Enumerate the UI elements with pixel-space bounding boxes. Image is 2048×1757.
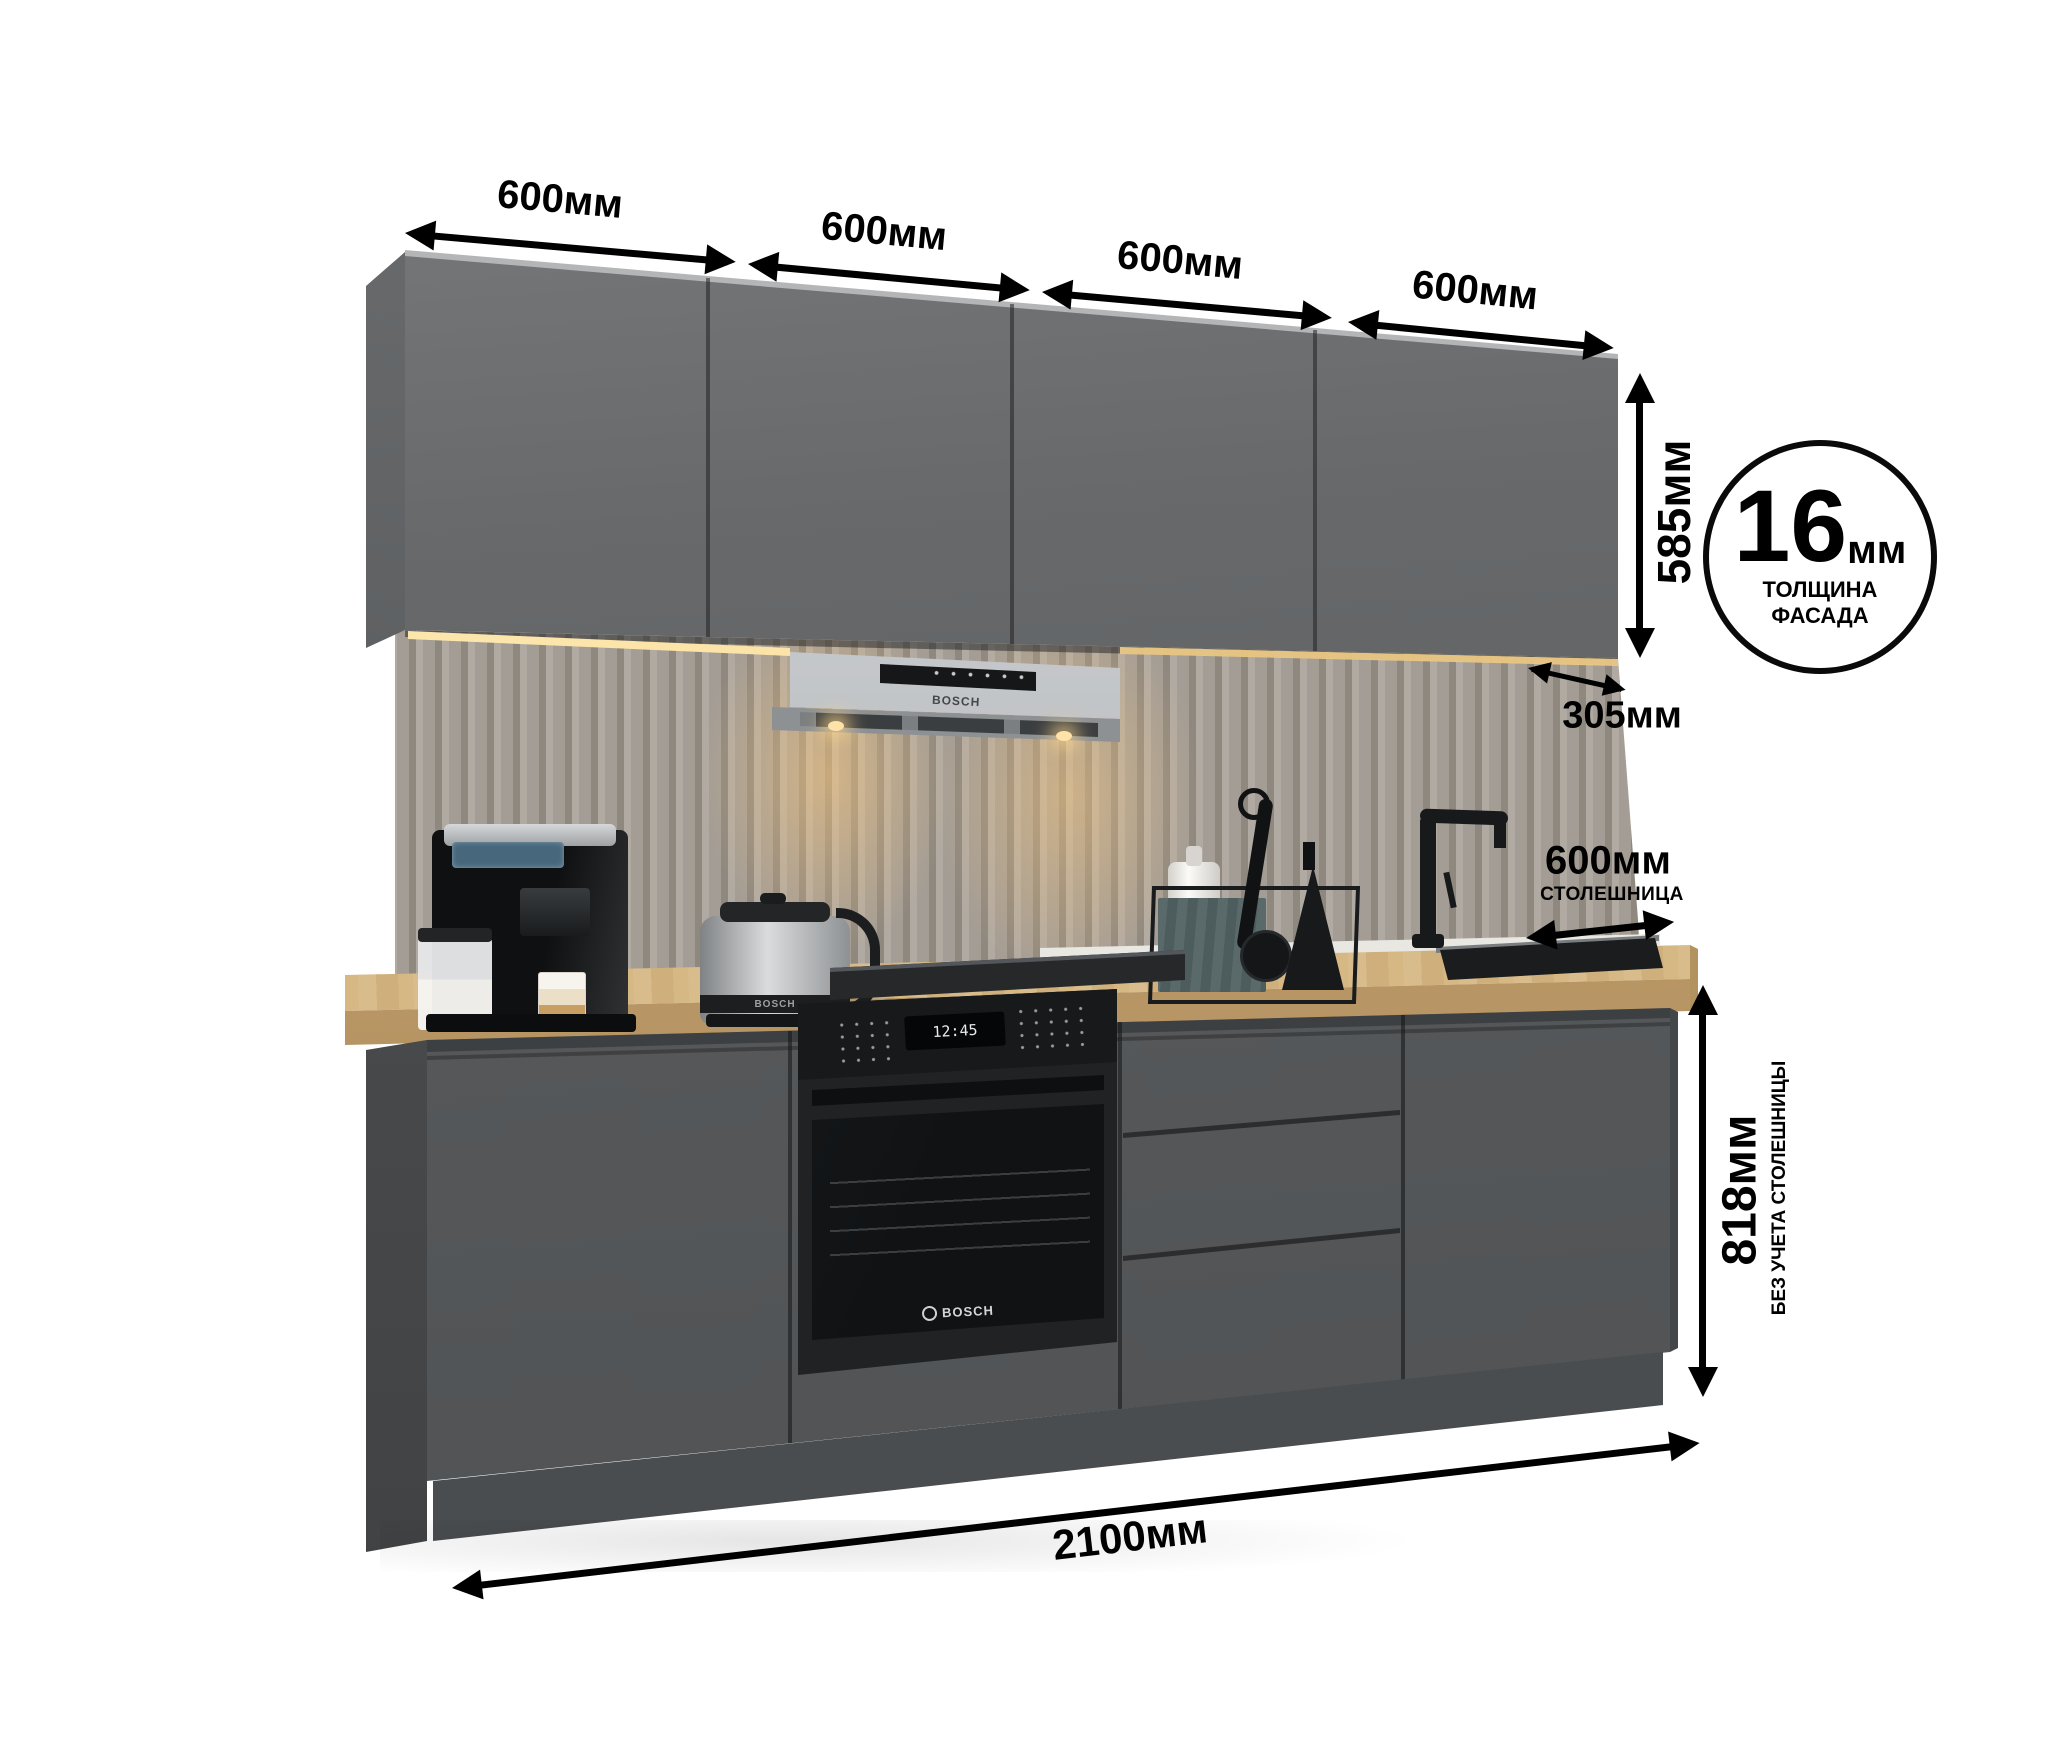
base-right-end-panel [0,0,2048,1757]
hood-lamp-right [1056,731,1072,741]
wall-door-divider [0,0,2048,1757]
countertop-front-edge [0,0,2048,1757]
wall-door-divider [0,0,2048,1757]
coffee-machine-display [452,842,564,868]
sink-basin [0,0,2048,1757]
dim-label-counter-depth-caption: СТОЛЕШНИЦА [1540,884,1684,906]
backsplash-panel [0,0,2048,1757]
cooktop-hob [0,0,2048,1757]
countertop-back-ledge [0,0,2048,1757]
coffee-machine-drip-tray [426,1014,636,1032]
hood-brand-label: BOSCH [932,693,981,709]
cooker-hood-control-strip [0,0,2048,1757]
dim-label-wall-depth: 305мм [1562,695,1682,738]
facade-thickness-value-row: 16 мм [1734,485,1907,569]
led-strip-left [0,0,2048,1757]
dim-arrow-top-width-1 [404,216,738,279]
wall-cabinet-top-edge [0,0,2048,1757]
drawer-gap-bottom [0,0,2048,1757]
kettle-lid-knob [760,893,786,904]
faucet-riser [1420,818,1436,944]
oven-button-dots-left [834,1017,892,1064]
cooker-hood-filters [0,0,2048,1757]
wall-cabinet-underside-shadow [0,0,2048,1757]
oven-door-window [0,0,2048,1757]
kettle-base [706,1014,846,1027]
plinth [0,0,2048,1757]
base-cabinets-front [0,0,2048,1757]
oven-brand-label: BOSCH [942,1303,995,1321]
dim-arrow-counter-depth [1524,905,1676,955]
dim-arrow-top-width-2 [746,247,1031,307]
drawer-gap-top [0,0,2048,1757]
base-cabinet-gap [0,0,2048,1757]
faucet-spout-down [1494,820,1506,848]
kettle-lid [720,902,830,922]
sink-rim [0,0,2048,1757]
coffee-machine-brew-group [520,888,590,936]
facade-thickness-value: 16 [1734,485,1847,569]
led-strip-right [0,0,2048,1757]
bosch-emblem-icon [922,1306,938,1322]
kettle-brand-band: BOSCH [700,995,850,1013]
hood-button-dots [928,667,1028,682]
oven-body [0,0,2048,1757]
countertop-surface [0,0,2048,1757]
oven-rack-reflections [0,0,2048,1757]
milk-carafe-lid [418,928,492,942]
base-top-rail-shadow [0,0,2048,1757]
dim-label-top-width-4: 600мм [1410,263,1540,320]
facade-thickness-badge: 16 мм ТОЛЩИНА ФАСАДА [1703,440,1937,674]
faucet-lever [1443,872,1456,908]
dim-arrow-total-width [450,1426,1702,1605]
facade-thickness-caption-2: ФАСАДА [1771,603,1868,629]
dim-label-top-width-1: 600мм [495,172,624,228]
facade-thickness-unit: мм [1847,534,1906,567]
hood-lamp-left [828,721,844,731]
oven-clock-display: 12:45 [904,1011,1006,1050]
kitchen-dimensions-diagram: BOSCH BOSCH [0,0,2048,1757]
dim-label-top-width-2: 600мм [819,204,948,260]
oven-brand-row: BOSCH [922,1303,995,1322]
dim-label-counter-depth: 600мм [1545,839,1671,884]
base-cabinet-gap [0,0,2048,1757]
wall-cabinet-side-panel [0,0,2048,1757]
base-door-top-recess [0,0,2048,1757]
cooker-hood-front [0,0,2048,1757]
brush-handle-ring [1238,788,1270,820]
dim-label-wall-height: 585мм [1647,440,1701,585]
dim-label-base-height: 818мм [1713,1114,1768,1265]
countertop-end-cap [0,0,2048,1757]
cooktop-hob-edge [0,0,2048,1757]
cooker-hood-underside [0,0,2048,1757]
wall-door-divider [0,0,2048,1757]
oven-control-panel [0,0,2048,1757]
soap-dispenser-pump [1303,842,1315,870]
oven-clock-time: 12:45 [932,1021,978,1041]
faucet-base [1412,934,1444,948]
kettle-brand-label: BOSCH [754,999,795,1010]
paper-towel-holder-knob [1186,846,1202,866]
dim-label-base-height-caption: БЕЗ УЧЕТА СТОЛЕШНИЦЫ [1769,1061,1791,1315]
dish-brush-head [1240,930,1292,982]
dim-label-top-width-3: 600мм [1115,233,1244,289]
facade-thickness-caption-1: ТОЛЩИНА [1763,577,1878,603]
oven-button-dots-right [1013,1002,1091,1050]
base-cabinet-gap [0,0,2048,1757]
oven-handle [0,0,2048,1757]
base-cabinet-side-panel [0,0,2048,1757]
wall-cabinets-front [0,0,2048,1757]
